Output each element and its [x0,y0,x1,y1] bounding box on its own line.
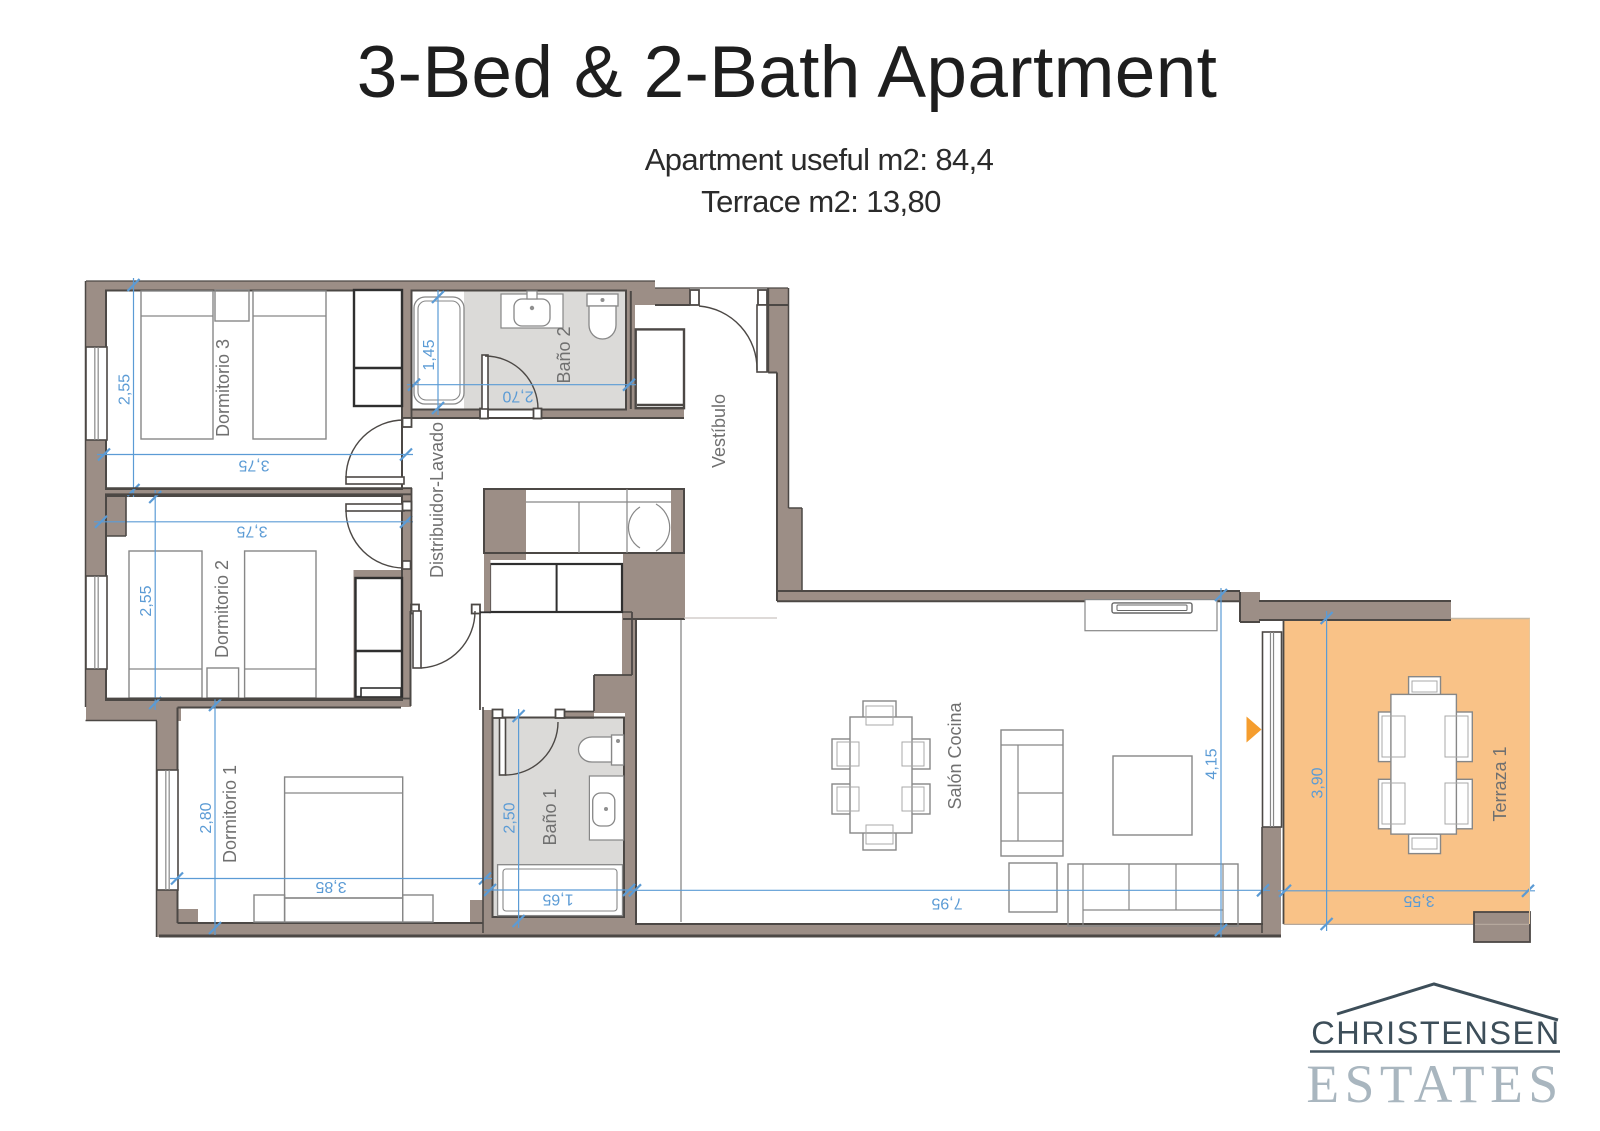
svg-text:Dormitorio 2: Dormitorio 2 [212,560,232,658]
svg-text:Apartment useful m2: 84,4: Apartment useful m2: 84,4 [645,142,994,177]
svg-text:3,55: 3,55 [1403,892,1434,909]
svg-text:2,80: 2,80 [198,802,215,833]
svg-text:Baño 1: Baño 1 [540,788,560,845]
svg-text:1,45: 1,45 [421,339,438,370]
svg-text:2,70: 2,70 [502,388,533,405]
svg-text:Salón Cocina: Salón Cocina [945,701,965,809]
svg-text:ESTATES: ESTATES [1306,1054,1563,1114]
svg-text:Terrace m2: 13,80: Terrace m2: 13,80 [701,184,941,219]
svg-text:3,85: 3,85 [315,878,346,895]
svg-text:2,55: 2,55 [117,374,134,405]
svg-text:CHRISTENSEN: CHRISTENSEN [1311,1015,1560,1051]
svg-text:Terraza 1: Terraza 1 [1490,746,1510,821]
svg-text:3,75: 3,75 [236,523,267,540]
svg-text:3,90: 3,90 [1310,767,1327,798]
svg-text:3-Bed & 2-Bath Apartment: 3-Bed & 2-Bath Apartment [357,32,1218,113]
svg-text:2,50: 2,50 [502,802,519,833]
svg-text:3,75: 3,75 [238,457,269,474]
svg-text:4,15: 4,15 [1204,748,1221,779]
svg-text:Vestíbulo: Vestíbulo [709,394,729,468]
svg-text:1,65: 1,65 [542,891,573,908]
svg-text:7,95: 7,95 [931,895,962,912]
svg-text:2,55: 2,55 [138,585,155,616]
svg-text:Baño 2: Baño 2 [554,326,574,383]
svg-text:Dormitorio 1: Dormitorio 1 [220,765,240,863]
svg-text:Dormitorio 3: Dormitorio 3 [213,339,233,437]
svg-text:Distribuidor-Lavado: Distribuidor-Lavado [427,422,447,578]
